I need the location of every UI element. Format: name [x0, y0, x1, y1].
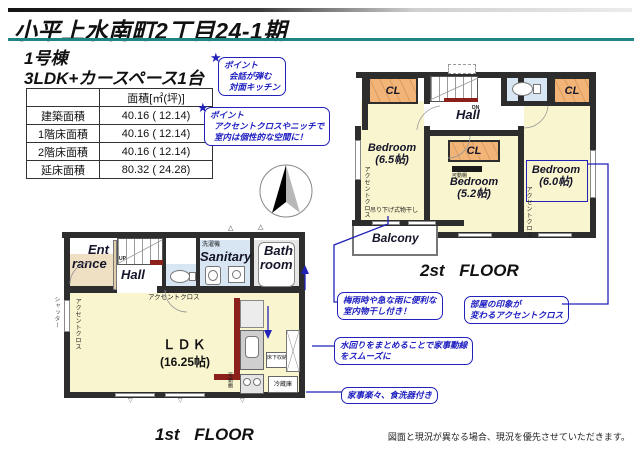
ldk-label: ＬＤＫ (16.25帖) [140, 334, 230, 370]
shoji-mark: ▽ [128, 398, 133, 404]
accent-cloth-label: アクセントクロス [74, 298, 80, 350]
vent-icon: △ [258, 224, 263, 231]
room-name: Bedroom [362, 142, 422, 154]
row-label: 1階床面積 [27, 125, 100, 143]
row-value: 40.16 ( 12.14) [100, 125, 213, 143]
shutter-label: シャッター [53, 296, 59, 329]
wall-segment [424, 126, 430, 226]
annotation-line: をスムーズに [340, 351, 467, 362]
annotation-water-area: 水回りをまとめることで家事動線 をスムーズに [334, 337, 473, 365]
toilet-tank [533, 84, 541, 94]
room-name: Bath [260, 244, 293, 258]
cl-label: CL [565, 85, 580, 97]
point-line: アクセントクロスやニッチで [210, 121, 324, 132]
kitchen-upper-unit [240, 300, 264, 328]
washbasin-bowl [208, 270, 218, 281]
cl-label: CL [386, 85, 401, 97]
window-mark [538, 233, 572, 237]
layout-type: 3LDK+カースペース1台 [24, 64, 204, 89]
table-row: 面積[㎡(坪)] [27, 89, 213, 107]
cl-label: CL [467, 145, 482, 157]
room-size: (5.2帖) [434, 188, 514, 200]
row-value: 40.16 ( 12.14) [100, 143, 213, 161]
balcony-label: Balcony [372, 232, 419, 245]
stove-burner [243, 378, 251, 386]
toilet-bowl [170, 270, 190, 283]
up-label: UP [119, 257, 126, 262]
washer-label: 洗濯機 [202, 242, 220, 248]
annotation-line: 水回りをまとめることで家事動線 [340, 340, 467, 351]
window-mark [458, 233, 492, 237]
window-mark [115, 393, 155, 397]
room-name: Bedroom [434, 176, 514, 188]
underfloor-storage: 床下収納 [266, 352, 288, 368]
washer-pan-drum [232, 270, 241, 279]
kitchen-sink [245, 336, 259, 358]
room-name: ＬＤＫ [140, 334, 230, 353]
row-label: 建築面積 [27, 107, 100, 125]
room-name: rance [72, 257, 109, 271]
bedroom-5-2-label: Bedroom (5.2帖) [434, 176, 514, 200]
bedroom-6-5-label: Bedroom (6.5帖) [362, 142, 422, 166]
table-row: 延床面積 80.32 ( 24.28) [27, 161, 213, 179]
wall-segment [62, 232, 305, 238]
bathroom-label: Bath room [260, 244, 293, 273]
entrance-label: Ent rance [72, 243, 109, 272]
refrigerator-space: 冷蔵庫 [268, 376, 298, 393]
row-label: 延床面積 [27, 161, 100, 179]
closet-cl3: CL [448, 140, 500, 162]
room-name: Bedroom [527, 164, 585, 176]
stair-accent-strip [150, 260, 163, 265]
table-row: 2階床面積 40.16 ( 12.14) [27, 143, 213, 161]
floor2-label: 2st FLOOR [420, 261, 519, 281]
sanitary-label: Sanitary [200, 250, 251, 264]
movable-shelf-bar [452, 166, 482, 172]
table-row: 建築面積 40.16 ( 12.14) [27, 107, 213, 125]
bedroom-6-0-label: Bedroom (6.0帖) [527, 164, 585, 188]
wall-segment [518, 126, 524, 238]
shoji-mark: ▽ [178, 398, 183, 404]
toilet-bowl [512, 82, 533, 96]
point-title: ポイント [224, 60, 280, 71]
tall-cabinet [286, 330, 300, 372]
window-mark [372, 221, 400, 225]
annotation-indoor-drying: 梅雨時や急な雨に便利な 室内物干し付き！ [337, 292, 443, 320]
row-value: 80.32 ( 24.28) [100, 161, 213, 179]
corner-cell [27, 89, 100, 107]
vent-icon: △ [228, 225, 233, 232]
wall-segment [424, 130, 524, 136]
window-mark [355, 140, 361, 180]
point-box-accent: ポイント アクセントクロスやニッチで 室内は個性的な空間に！ [204, 107, 330, 146]
point-title: ポイント [210, 110, 324, 121]
room-size: (6.5帖) [362, 154, 422, 166]
area-header-cell: 面積[㎡(坪)] [100, 89, 213, 107]
wall-segment [157, 286, 305, 293]
row-value: 40.16 ( 12.14) [100, 107, 213, 125]
wall-segment [64, 286, 117, 293]
annotation-accent-cloth: 部屋の印象が 変わるアクセントクロス [464, 296, 569, 324]
hanging-rod-label: 吊り下げ式物干し [370, 208, 418, 214]
stove-burner [253, 378, 261, 386]
point-line: 対面キッチン [224, 82, 280, 93]
point-box-kitchen: ポイント 会話が弾む 対面キッチン [218, 57, 286, 96]
stair-landing-dashed [448, 64, 476, 74]
annotation-dishwasher: 家事楽々、食洗器付き [341, 387, 438, 404]
room-size: (16.25帖) [140, 353, 230, 370]
row-label: 2階床面積 [27, 143, 100, 161]
annotation-line: 室内物干し付き！ [343, 306, 437, 317]
disclaimer: 図面と現況が異なる場合、現況を優先させていただきます。 [388, 430, 630, 443]
window-mark [64, 300, 70, 332]
window-mark [165, 393, 205, 397]
room-size: (6.0帖) [527, 176, 585, 188]
room-name: room [260, 258, 293, 272]
accent-cloth-label: アクセントクロス [363, 166, 369, 218]
annotation-line: 部屋の印象が [470, 299, 563, 310]
closet-cl2: CL [553, 77, 591, 104]
point-line: 会話が弾む [224, 71, 280, 82]
shoji-mark: ▽ [240, 398, 245, 404]
annotation-line: 家事楽々、食洗器付き [347, 390, 432, 401]
north-compass-icon [257, 161, 315, 221]
movable-shelf-label: 可動棚 [227, 372, 232, 389]
table-row: 1階床面積 40.16 ( 12.14) [27, 125, 213, 143]
toilet-tank [189, 272, 196, 281]
annotation-line: 梅雨時や急な雨に便利な [343, 295, 437, 306]
hall-1f-label: Hall [121, 268, 145, 282]
area-table: 面積[㎡(坪)] 建築面積 40.16 ( 12.14) 1階床面積 40.16… [26, 88, 213, 179]
closet-cl1: CL [368, 77, 418, 104]
annotation-line: 変わるアクセントクロス [470, 310, 563, 321]
wall-segment [299, 232, 305, 398]
point-line: 室内は個性的な空間に！ [210, 132, 324, 143]
teal-rule [8, 38, 634, 41]
window-mark [408, 221, 436, 225]
flyer-page: 小平上水南町2丁目24-1期 1号棟 3LDK+カースペース1台 面積[㎡(坪)… [0, 0, 640, 453]
window-mark [590, 150, 596, 198]
accent-cloth-label: アクセントクロス [148, 295, 200, 302]
floor1-label: 1st FLOOR [155, 425, 254, 445]
wall-segment [501, 72, 507, 104]
stair-accent-strip [444, 98, 478, 102]
room-name: Ent [72, 243, 109, 257]
hall-2f-label: Hall [456, 108, 480, 122]
accent-cloth-label: アクセントクロス [525, 186, 531, 238]
